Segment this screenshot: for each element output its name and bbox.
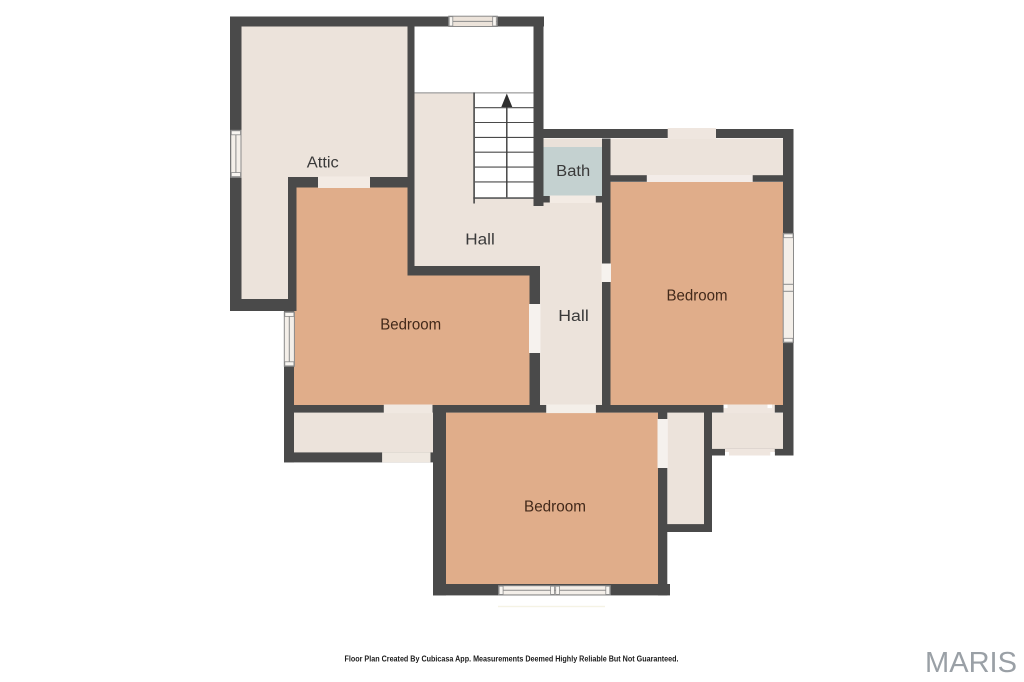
svg-text:MARIS: MARIS xyxy=(925,647,1017,679)
svg-text:Bath: Bath xyxy=(556,163,590,180)
svg-text:Hall: Hall xyxy=(558,308,589,325)
svg-text:Bedroom: Bedroom xyxy=(667,288,728,305)
svg-text:Bedroom: Bedroom xyxy=(524,498,586,515)
svg-text:Attic: Attic xyxy=(307,155,339,172)
svg-text:Hall: Hall xyxy=(465,231,495,248)
svg-text:Bedroom: Bedroom xyxy=(380,317,441,334)
svg-text:Floor Plan Created By Cubicasa: Floor Plan Created By Cubicasa App. Meas… xyxy=(345,654,679,664)
